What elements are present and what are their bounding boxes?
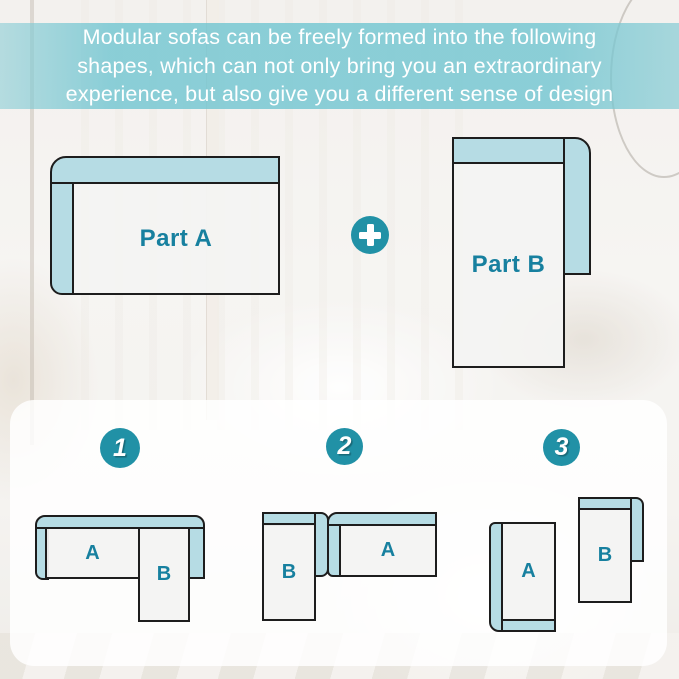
combination-1-badge: 1 [100,428,140,468]
combo3-label-b: B [598,544,612,567]
combo1-label-b: B [157,563,171,586]
combo3-label-a: A [521,560,535,583]
combination-3-diagram-a: A [489,522,556,632]
part-b-armrest [563,137,591,275]
combo2-seat-a: A [339,524,437,577]
combination-2-diagram: B A [262,512,437,621]
banner-line-3: experience, but also give you a differen… [66,80,614,109]
combo1-label-a: A [85,542,99,565]
combo3-b-armrest [630,497,644,562]
combo2-label-b: B [282,561,296,584]
part-a-armrest [50,182,74,295]
badge-3-number: 3 [555,433,569,462]
combo1-right-armrest [188,527,205,579]
badge-1-number: 1 [113,434,127,463]
combination-3-badge: 3 [543,429,580,466]
combo3-seat-a: A [501,522,556,621]
badge-2-number: 2 [338,432,352,461]
modular-sofa-infographic: Modular sofas can be freely formed into … [0,0,679,679]
part-b-seat: Part B [452,162,565,368]
part-a-diagram: Part A [50,156,280,295]
combo1-seat-a: A [45,527,140,579]
combination-2-badge: 2 [326,428,363,465]
combination-1-diagram: A B [35,515,205,622]
combination-3-diagram-b: B [578,497,644,603]
header-banner: Modular sofas can be freely formed into … [0,23,679,109]
combo1-seat-b: B [138,527,190,622]
part-a-backrest [50,156,280,184]
part-a-label: Part A [140,225,213,253]
banner-line-2: shapes, which can not only bring you an … [77,52,602,81]
plus-icon [351,216,389,254]
part-b-label: Part B [472,251,546,279]
combo3-seat-b: B [578,508,632,603]
banner-line-1: Modular sofas can be freely formed into … [83,23,597,52]
part-b-backrest [452,137,565,164]
combo2-label-a: A [381,539,395,562]
part-a-seat: Part A [72,182,280,295]
combo2-seat-b: B [262,523,316,621]
part-b-diagram: Part B [452,137,591,368]
